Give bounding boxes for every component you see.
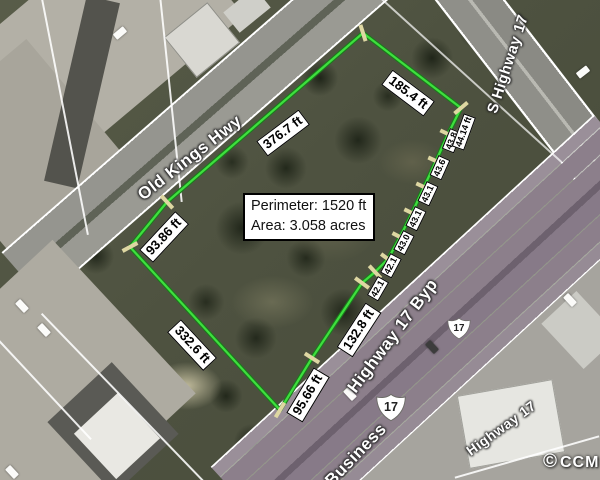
us-route-17-shield-icon: 17 bbox=[447, 317, 472, 346]
watermark-text: CCM bbox=[560, 454, 599, 471]
us-route-17-shield-icon: 17 bbox=[375, 393, 407, 428]
parcel-info-box: Perimeter: 1520 ft Area: 3.058 acres bbox=[243, 193, 375, 241]
shield-number: 17 bbox=[384, 400, 398, 414]
area-value: Area: 3.058 acres bbox=[251, 217, 366, 237]
aerial-parcel-map: Old Kings Hwy S Highway 17 Highway 17 By… bbox=[0, 0, 600, 480]
perimeter-value: Perimeter: 1520 ft bbox=[251, 197, 366, 217]
ccm-logo-icon: © bbox=[543, 451, 558, 472]
shield-number: 17 bbox=[454, 323, 465, 334]
watermark: ©CCM bbox=[543, 451, 599, 473]
